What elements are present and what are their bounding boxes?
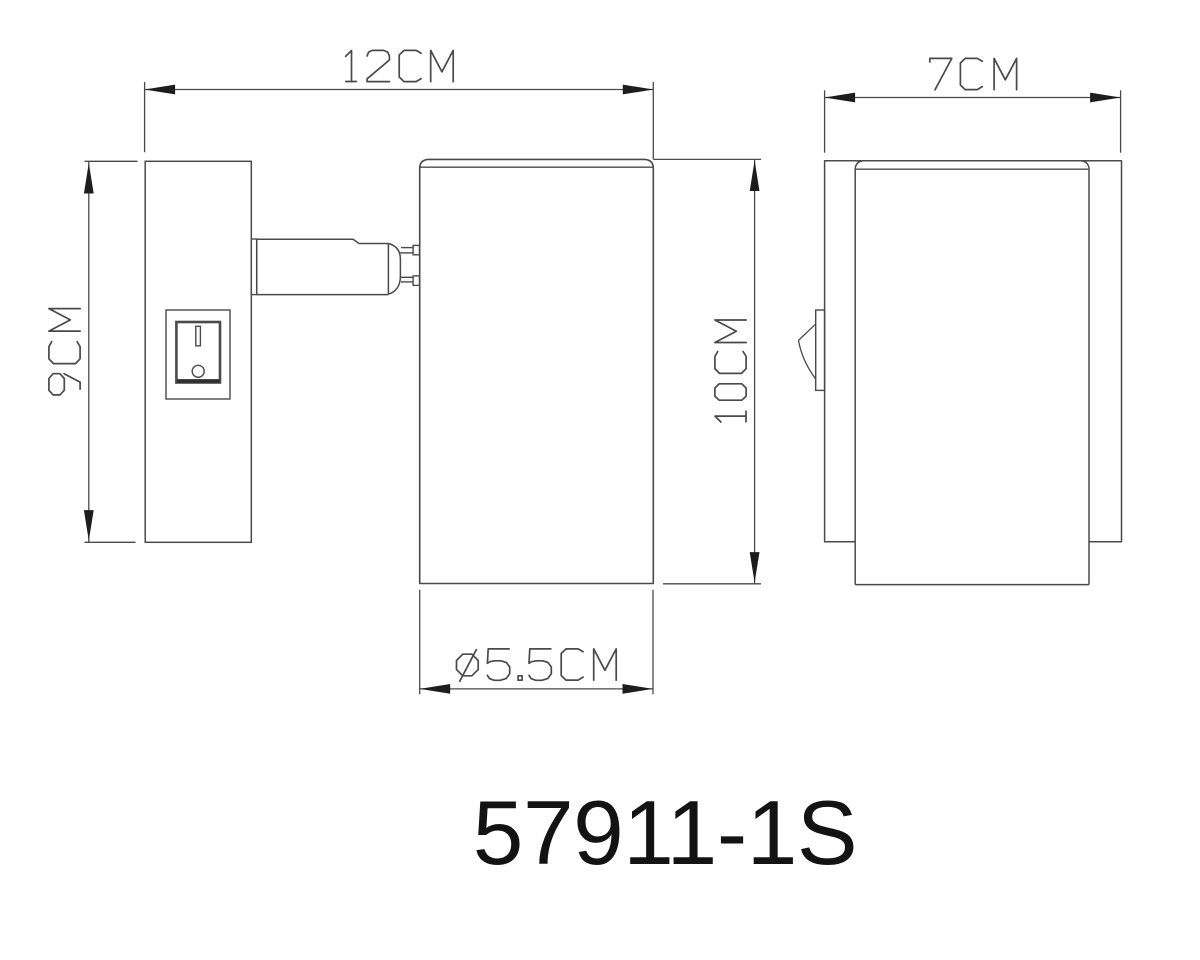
svg-text:57911-1S: 57911-1S: [473, 783, 857, 884]
